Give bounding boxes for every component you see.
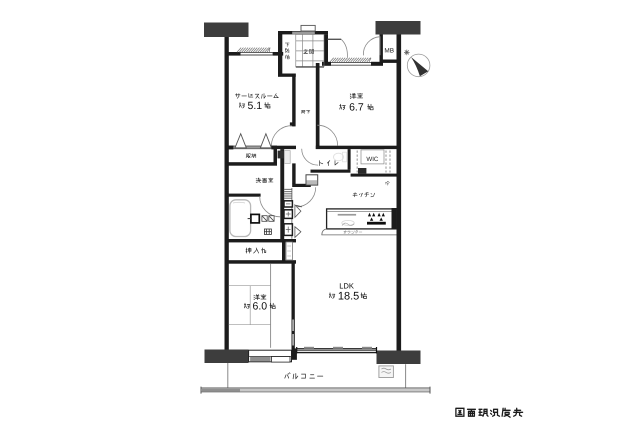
svg-text:18.5: 18.5 xyxy=(338,290,359,302)
svg-text:5.1: 5.1 xyxy=(247,100,262,112)
svg-text:MB: MB xyxy=(384,48,394,55)
svg-text:LDK: LDK xyxy=(339,281,354,290)
svg-text:6.0: 6.0 xyxy=(252,301,267,313)
svg-text:6.7: 6.7 xyxy=(349,102,364,114)
svg-text:WIC: WIC xyxy=(366,156,379,163)
